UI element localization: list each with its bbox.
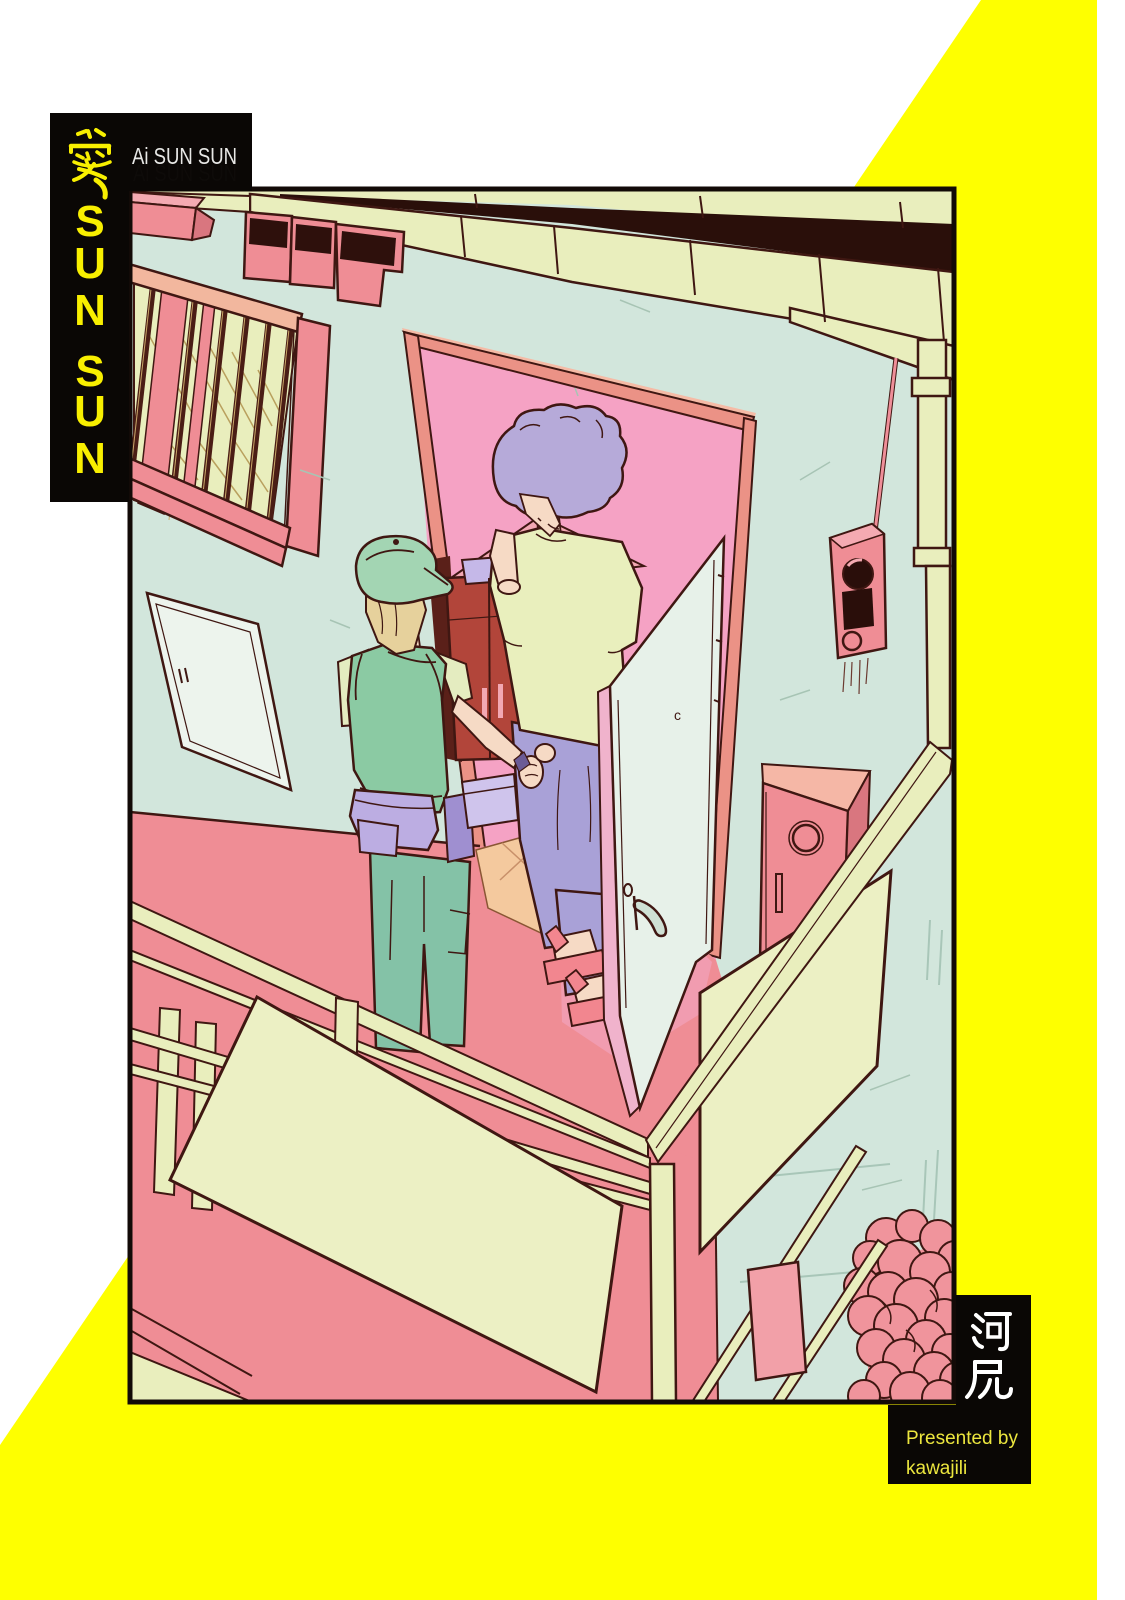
svg-text:Presented by: Presented by xyxy=(906,1428,1018,1449)
svg-text:U: U xyxy=(74,387,106,436)
svg-text:N: N xyxy=(74,434,106,483)
svg-text:c: c xyxy=(674,707,681,723)
svg-text:U: U xyxy=(74,239,106,288)
svg-text:N: N xyxy=(74,286,106,335)
svg-text:kawajili: kawajili xyxy=(906,1458,967,1479)
svg-text:Ai SUN SUN: Ai SUN SUN xyxy=(132,143,237,169)
